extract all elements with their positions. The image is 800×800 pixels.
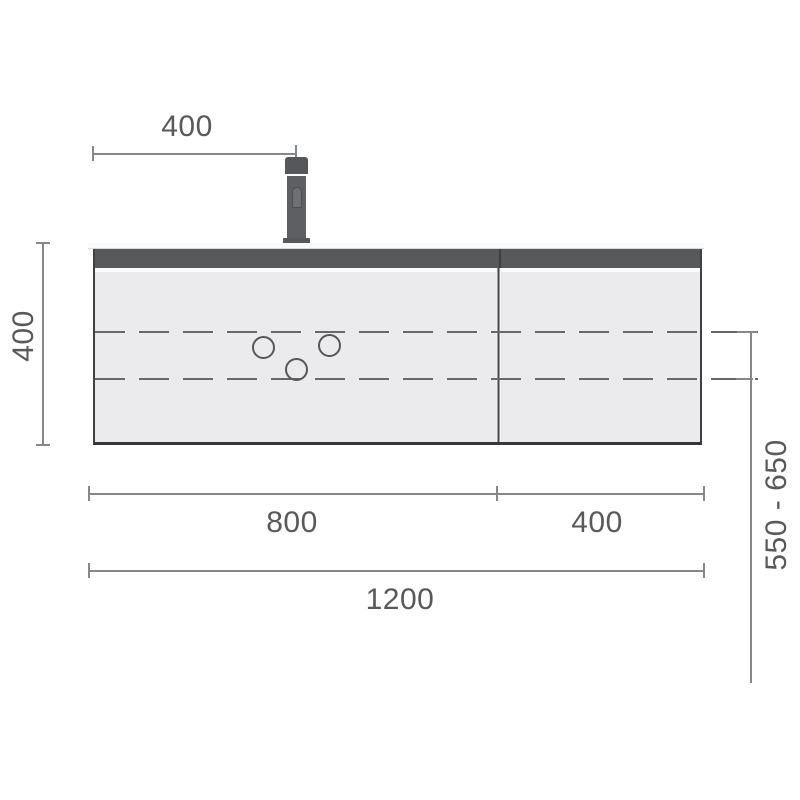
- tap-offset-dimension-tick-right: [295, 145, 297, 157]
- total-width-tick-right: [703, 563, 705, 578]
- left-door: [97, 272, 496, 442]
- right-door: [501, 272, 698, 442]
- total-width-tick-left: [88, 563, 90, 578]
- drain-reference-line-lower: [95, 378, 758, 380]
- section-width-tick-middle: [496, 486, 498, 501]
- total-width-dimension-line: [88, 570, 704, 572]
- right-door-width-label: 400: [547, 508, 647, 538]
- faucet-lever: [292, 187, 302, 208]
- tap-offset-dimension-label: 400: [137, 112, 237, 142]
- left-door-width-label: 800: [242, 508, 342, 538]
- drain-hole-circle-right: [318, 334, 341, 357]
- cabinet-height-dimension-line: [42, 243, 44, 445]
- drain-height-dimension-line: [750, 332, 752, 683]
- total-width-label: 1200: [340, 585, 460, 615]
- faucet-head: [285, 157, 308, 174]
- section-width-dimension-line: [88, 493, 704, 495]
- cabinet-height-dimension-label: 400: [9, 310, 39, 362]
- cabinet-top-band: [95, 249, 700, 268]
- drain-hole-circle-left: [252, 336, 275, 359]
- tap-offset-dimension-line: [92, 153, 296, 155]
- cabinet-height-dimension-tick-bottom: [36, 444, 50, 446]
- drain-reference-line-upper: [95, 331, 758, 333]
- cabinet-band-seam: [499, 249, 501, 268]
- cabinet-height-dimension-tick-top: [36, 242, 50, 244]
- section-width-tick-right: [703, 486, 705, 501]
- drain-height-range-label: 550 - 650: [762, 439, 792, 570]
- drain-height-tick-upper: [737, 331, 757, 333]
- tap-offset-dimension-tick-left: [92, 146, 94, 161]
- section-width-tick-left: [88, 486, 90, 501]
- technical-drawing-canvas: 400 400 800 400 1200 550 - 650: [0, 0, 800, 800]
- drain-hole-circle-bottom: [285, 358, 308, 381]
- vanity-cabinet: [93, 249, 702, 445]
